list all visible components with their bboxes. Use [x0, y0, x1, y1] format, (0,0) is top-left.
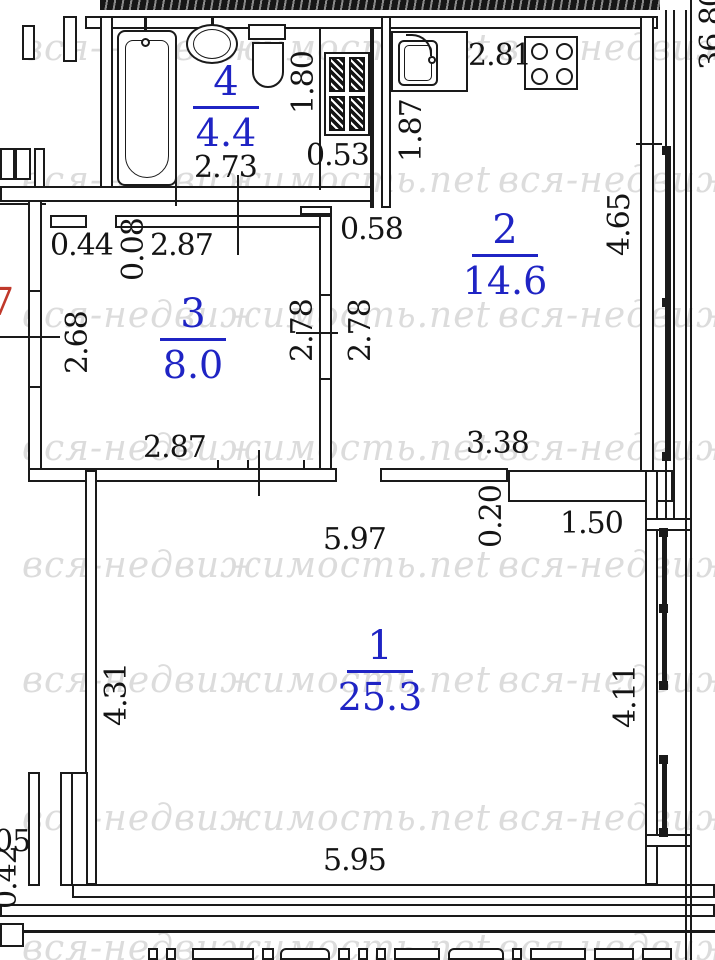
window-post [659, 755, 668, 764]
room-1-label: 1 25.3 [330, 626, 430, 716]
unit-number: 7 [0, 280, 13, 324]
window-post [662, 452, 671, 461]
wall-segment [0, 904, 715, 917]
cutoff-fixture [394, 948, 440, 960]
floor-plan: вся-недвижимость.net вся-недвижимость.ne… [0, 0, 715, 960]
dim-label: 5.97 [323, 522, 386, 557]
vent-shaft-cell [329, 96, 345, 131]
dim-label: 1.50 [560, 506, 623, 541]
window-post [659, 528, 668, 537]
watermark: вся-недвижимость.net [498, 545, 715, 586]
stove-burner [556, 43, 573, 60]
wall-segment [22, 25, 35, 60]
wall-segment [370, 28, 374, 208]
loggia-line [673, 10, 675, 518]
dim-label: 2.73 [194, 150, 257, 185]
vent-shaft-cell [349, 96, 365, 131]
room-area: 4.4 [176, 114, 276, 152]
dim-label: 3.38 [466, 426, 529, 461]
dim-label: 0.53 [306, 138, 369, 173]
dim-label: 2.68 [60, 316, 90, 374]
washbasin-bowl [193, 29, 231, 59]
window [662, 760, 667, 834]
dim-tick [0, 336, 60, 338]
wall-segment [0, 148, 15, 180]
dim-tick [258, 450, 260, 496]
cutoff-fixture [594, 948, 634, 960]
cutoff-fixture [148, 948, 158, 960]
vent-shaft-cell [349, 57, 365, 92]
stove-burner [531, 68, 548, 85]
room-3-label: 3 8.0 [143, 294, 243, 384]
wall-segment [63, 16, 77, 62]
cutoff-fixture [262, 948, 274, 960]
wall-joint [319, 378, 332, 380]
watermark: вся-недвижимость.net [498, 428, 715, 469]
dim-label: 2.78 [285, 304, 315, 362]
watermark: вся-недвижимость.net [22, 428, 491, 469]
wall-joint [319, 294, 332, 296]
wall-segment [0, 186, 374, 202]
wall-segment [15, 148, 31, 180]
cutoff-fixture [512, 948, 522, 960]
dim-label: 1.87 [394, 104, 424, 162]
cutoff-fixture [192, 948, 254, 960]
room-2-label: 2 14.6 [455, 210, 555, 300]
cutoff-fixture [530, 948, 586, 960]
room-area: 25.3 [330, 678, 430, 716]
cutoff-fixture [642, 948, 672, 960]
cutoff-fixture [166, 948, 176, 960]
dim-label: 0.42 [0, 853, 19, 909]
toilet-tank [248, 24, 286, 40]
dim-tick [237, 175, 239, 255]
wall-segment [300, 206, 332, 215]
cutoff-fixture [280, 948, 330, 960]
loggia-outer-wall [685, 10, 687, 960]
total-area-label: 36.80 [694, 6, 715, 70]
wall-segment [60, 772, 88, 886]
dim-label: 4.65 [602, 198, 632, 256]
loggia-outer-wall [690, 0, 692, 960]
room-number: 2 [472, 210, 537, 257]
dim-tick [303, 460, 305, 470]
room-area: 8.0 [143, 346, 243, 384]
wall-joint [28, 386, 42, 388]
bathtub-basin [125, 40, 169, 178]
wall-joint [28, 290, 42, 292]
room-number: 3 [160, 294, 225, 341]
dim-tick [636, 143, 662, 145]
wall-segment [28, 468, 337, 482]
dim-tick [247, 460, 249, 470]
bathtub-drain-icon [141, 38, 150, 47]
dim-label: 4.11 [608, 670, 638, 728]
kitchen-faucet-base [428, 56, 436, 64]
window-post [659, 828, 668, 837]
room-4-label: 4 4.4 [176, 62, 276, 152]
dim-label: 2.78 [343, 304, 373, 362]
window-post [662, 146, 671, 155]
wall-segment [34, 148, 45, 188]
wall-joint [71, 772, 73, 886]
wall-segment [0, 930, 715, 933]
wall-segment [645, 470, 658, 885]
room-area: 14.6 [455, 262, 555, 300]
dim-label: 2.87 [143, 430, 206, 465]
wall-segment [72, 884, 715, 898]
stove-burner [531, 43, 548, 60]
dim-label: 2.81 [468, 38, 531, 73]
window-post [659, 604, 668, 613]
wall-segment [319, 215, 332, 470]
wall-segment [0, 923, 24, 947]
watermark: вся-недвижимость.net [498, 660, 715, 701]
cutoff-fixture [376, 948, 386, 960]
watermark: вся-недвижимость.net [498, 798, 715, 839]
dim-label: 0.44 [50, 228, 113, 263]
wall-segment [28, 200, 42, 470]
dim-label: 2.87 [150, 228, 213, 263]
window-post [662, 298, 671, 307]
dim-label: 1.80 [286, 56, 316, 114]
cutoff-fixture [338, 948, 350, 960]
dim-label: 4.31 [99, 668, 129, 726]
wall-segment [50, 215, 87, 228]
dim-label: 0.20 [474, 490, 504, 548]
exterior-wall-hatch [100, 0, 660, 10]
dim-label: 0.08 [116, 225, 146, 281]
wall-segment [380, 468, 508, 482]
cutoff-fixture [448, 948, 504, 960]
stove-burner [556, 68, 573, 85]
dim-tick [217, 460, 219, 470]
wall-segment [381, 16, 391, 208]
window-post [659, 681, 668, 690]
wall-segment [640, 16, 654, 472]
wall-segment [100, 16, 113, 190]
room-number: 4 [193, 62, 258, 109]
room-number: 1 [347, 626, 412, 673]
dim-label: 0.58 [340, 212, 403, 247]
cutoff-fixture [358, 948, 368, 960]
dim-label: 5.95 [323, 843, 386, 878]
vent-shaft-cell [329, 57, 345, 92]
